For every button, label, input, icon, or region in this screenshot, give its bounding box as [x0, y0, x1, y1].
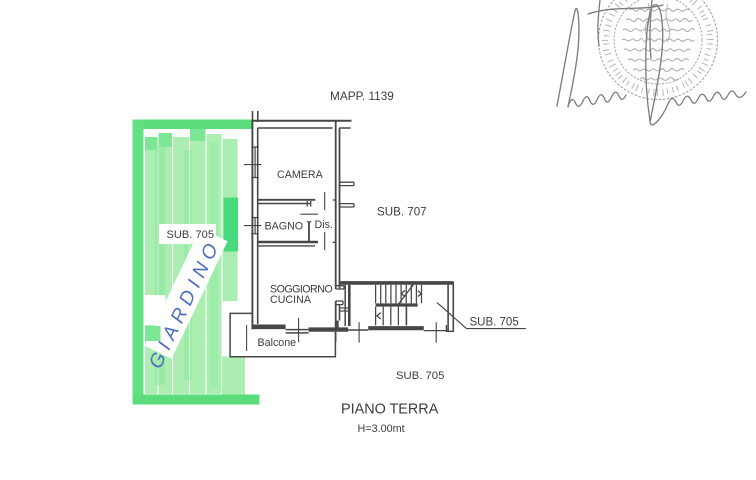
- svg-text:BAGNO: BAGNO: [265, 221, 304, 233]
- svg-text:Dis.: Dis.: [315, 219, 333, 231]
- svg-text:CUCINA: CUCINA: [270, 294, 312, 306]
- svg-text:PIANO TERRA: PIANO TERRA: [341, 402, 439, 418]
- svg-text:MAPP. 1139: MAPP. 1139: [330, 89, 394, 103]
- svg-text:SUB. 705: SUB. 705: [396, 370, 444, 382]
- svg-text:SUB. 707: SUB. 707: [377, 206, 427, 219]
- svg-text:Balcone: Balcone: [258, 337, 297, 349]
- svg-text:CAMERA: CAMERA: [277, 169, 324, 181]
- svg-text:SUB. 705: SUB. 705: [470, 317, 519, 329]
- svg-text:H=3.00mt: H=3.00mt: [358, 423, 405, 435]
